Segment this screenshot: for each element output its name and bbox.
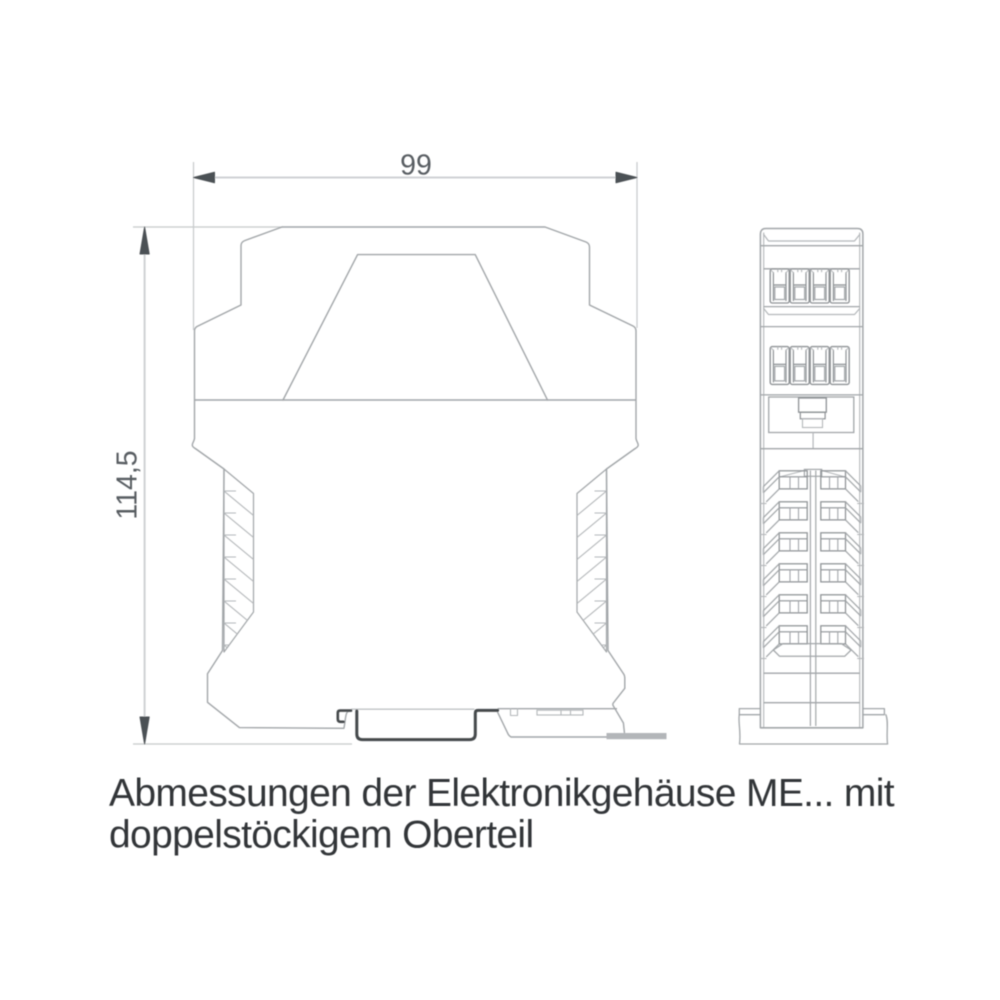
svg-text:Abmessungen der Elektronikgehä: Abmessungen der Elektronikgehäuse ME... … (109, 772, 895, 815)
svg-text:114,5: 114,5 (112, 450, 144, 519)
svg-text:doppelstöckigem Oberteil: doppelstöckigem Oberteil (109, 814, 533, 857)
svg-text:99: 99 (400, 150, 432, 182)
